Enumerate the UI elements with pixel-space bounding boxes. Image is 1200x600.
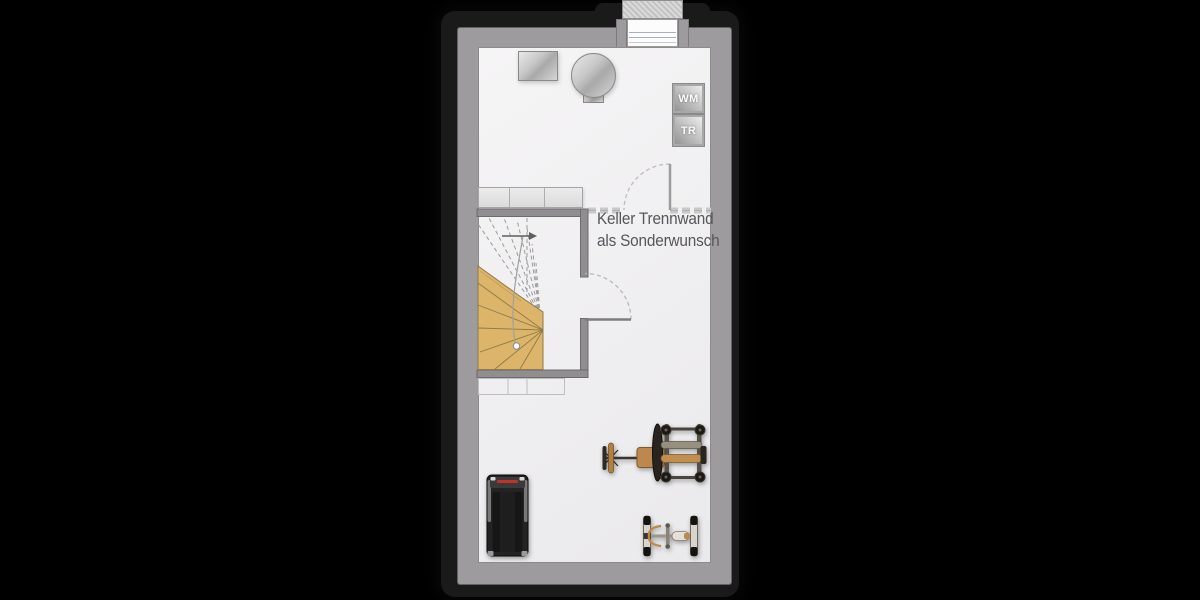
washing-machine: WM xyxy=(673,84,704,113)
annotation: Keller Trennwand als Sonderwunsch xyxy=(597,208,719,252)
boiler-tank xyxy=(571,53,616,98)
shelf-divider xyxy=(509,188,510,207)
basement-window xyxy=(627,19,678,47)
floorplan-canvas: WM TR xyxy=(0,0,1200,600)
window-wall-stub-right xyxy=(678,19,689,47)
window-wall-stub-left xyxy=(616,19,627,47)
chimney-vent-block xyxy=(622,0,683,19)
washing-machine-label: WM xyxy=(678,93,698,105)
window-glazing-line xyxy=(629,32,676,38)
annotation-line-2: als Sonderwunsch xyxy=(597,230,719,252)
dryer: TR xyxy=(673,115,704,146)
window-glazing-line xyxy=(629,42,676,43)
shelf-divider xyxy=(544,188,545,207)
dryer-label: TR xyxy=(681,125,696,137)
annotation-line-1: Keller Trennwand xyxy=(597,208,719,230)
heating-unit xyxy=(518,51,558,81)
storage-shelf-upper xyxy=(478,187,583,208)
